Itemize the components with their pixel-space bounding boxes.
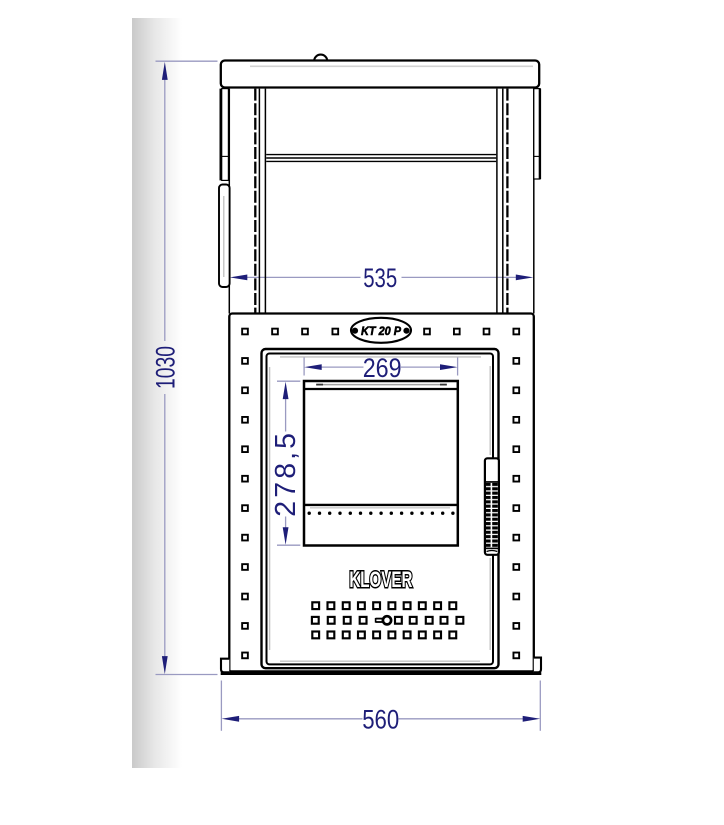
svg-text:560: 560 bbox=[362, 705, 399, 735]
svg-text:KT 20 P: KT 20 P bbox=[361, 324, 402, 338]
svg-text:269: 269 bbox=[363, 353, 402, 383]
svg-text:535: 535 bbox=[363, 263, 397, 293]
svg-text:KLOVER: KLOVER bbox=[349, 567, 412, 592]
svg-text:278,5: 278,5 bbox=[270, 430, 302, 517]
svg-text:1030: 1030 bbox=[150, 346, 180, 389]
